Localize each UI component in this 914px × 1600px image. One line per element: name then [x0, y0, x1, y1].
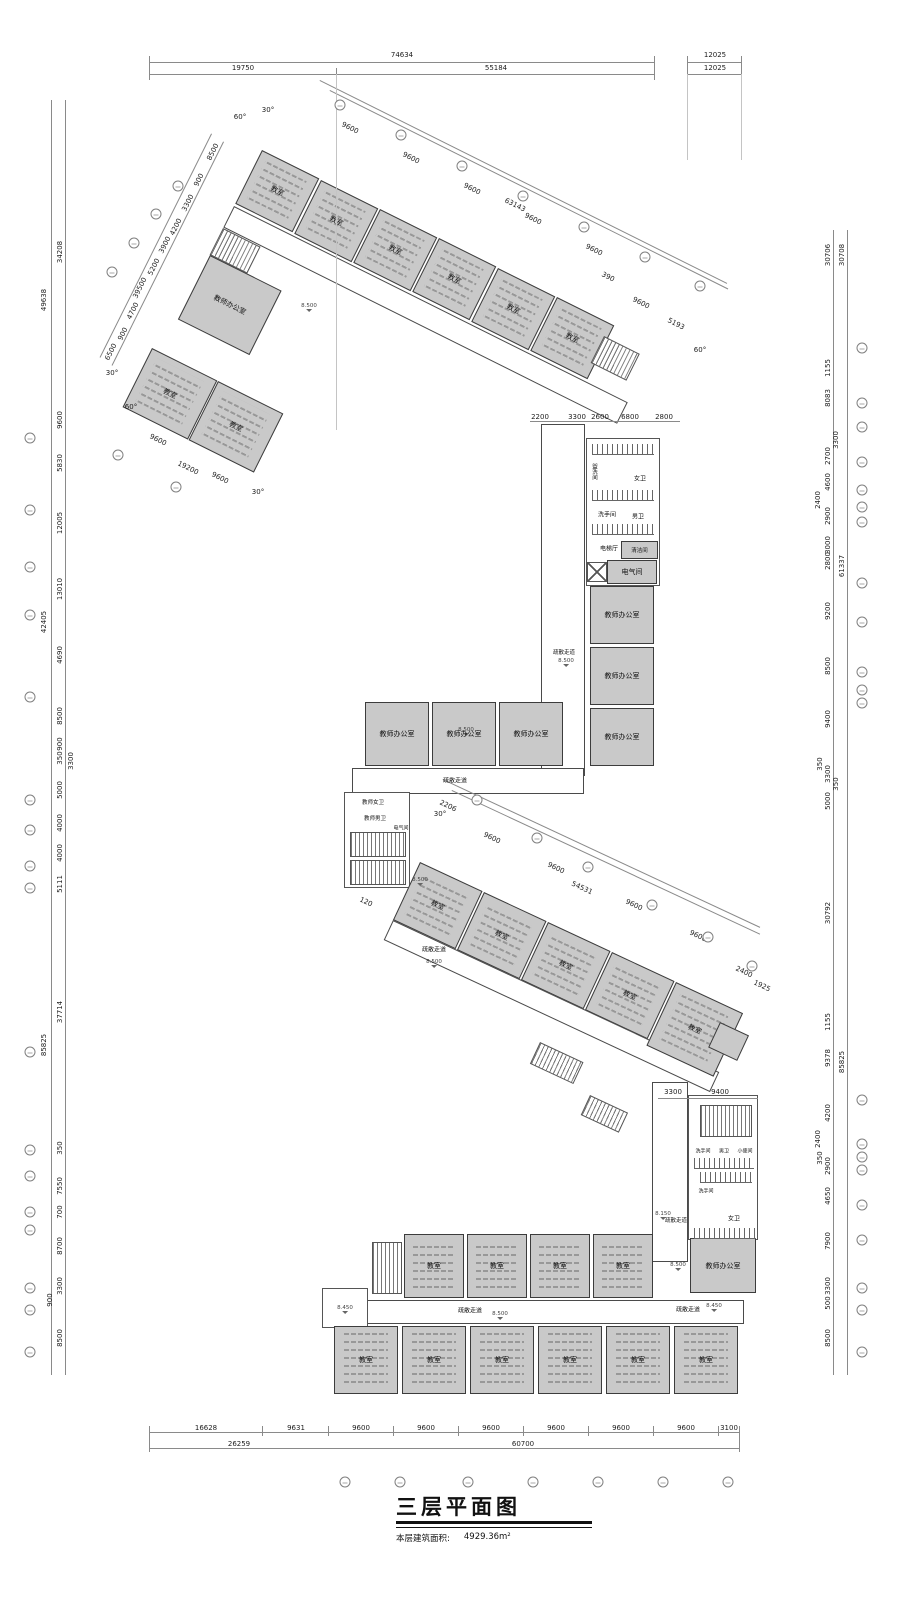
dimension-label: 9600 — [210, 470, 230, 485]
dimension-label: 19750 — [232, 64, 254, 72]
function-label: 洗手间 — [695, 1148, 710, 1155]
dimension-label: 26259 — [228, 1440, 250, 1448]
dimension-label: 9600 — [148, 432, 168, 447]
stair-hatch — [350, 832, 406, 857]
room-label: 教室 — [616, 1261, 630, 1271]
dimension-line — [65, 100, 66, 1375]
grid-axis-bubble — [857, 1305, 868, 1316]
room-label: 教师办公室 — [605, 732, 640, 742]
dimension-label: 5830 — [56, 454, 64, 472]
grid-axis-bubble — [25, 692, 36, 703]
dimension-label: 9400 — [824, 710, 832, 728]
stair-hatch — [350, 860, 406, 885]
grid-axis-bubble — [396, 130, 407, 141]
grid-axis-bubble — [25, 433, 36, 444]
dimension-label: 1155 — [824, 359, 832, 377]
grid-axis-bubble — [472, 795, 483, 806]
grid-axis-bubble — [857, 517, 868, 528]
grid-axis-bubble — [340, 1477, 351, 1488]
dimension-label: 2900 — [824, 507, 832, 525]
level-marker: 8.500 — [558, 658, 574, 670]
stair-hatch — [372, 1242, 402, 1294]
stair-hatch — [700, 1105, 752, 1137]
room-label: 教师办公室 — [706, 1261, 741, 1271]
dimension-label: 9600 — [482, 831, 502, 846]
dimension-label: 9600 — [417, 1424, 435, 1432]
dimension-label: 8500 — [56, 707, 64, 725]
room-office: 教师办公室 — [178, 255, 282, 355]
level-marker: 8.450 — [706, 1303, 722, 1315]
dimension-label: 900 — [46, 1293, 54, 1306]
grid-axis-bubble — [640, 252, 651, 263]
grid-axis-bubble — [723, 1477, 734, 1488]
function-label: 疏散走道 — [443, 776, 467, 785]
function-label: 男卫 — [719, 1148, 729, 1155]
grid-axis-bubble — [593, 1477, 604, 1488]
function-label: 男卫 — [632, 512, 644, 521]
dimension-label: 3300 — [824, 765, 832, 783]
level-marker: 8.500 — [301, 303, 317, 315]
dimension-label: 30° — [434, 810, 446, 818]
dimension-line — [654, 56, 655, 80]
grid-axis-bubble — [579, 222, 590, 233]
dimension-label: 2400 — [814, 1130, 822, 1148]
dimension-label: 700 — [56, 1205, 64, 1218]
room-office: 教师办公室 — [432, 702, 496, 766]
function-label: 女卫 — [728, 1214, 740, 1223]
stair-hatch — [581, 1095, 628, 1133]
dimension-label: 30° — [252, 488, 264, 496]
grid-axis-bubble — [857, 617, 868, 628]
room-label: 教师办公室 — [380, 729, 415, 739]
dimension-line — [150, 1448, 740, 1449]
function-label: 盥洗间 — [590, 464, 598, 481]
level-marker: 8.500 — [670, 1262, 686, 1274]
dimension-label: 4000 — [56, 814, 64, 832]
dimension-label: 8500 — [56, 1329, 64, 1347]
room-office: 教师办公室 — [590, 647, 654, 705]
dimension-label: 3300 — [67, 752, 75, 770]
dimension-label: 3300 — [664, 1088, 682, 1096]
dimension-label: 6800 — [621, 413, 639, 421]
dimension-label: 54531 — [570, 880, 594, 897]
grid-axis-bubble — [25, 562, 36, 573]
dimension-label: 7550 — [56, 1177, 64, 1195]
grid-axis-bubble — [747, 961, 758, 972]
dimension-label: 9600 — [462, 181, 482, 196]
dimension-label: 49638 — [40, 289, 48, 311]
title-underline — [396, 1521, 592, 1528]
dimension-label: 4000 — [56, 844, 64, 862]
room-office: 教师办公室 — [499, 702, 563, 766]
dimension-label: 9378 — [824, 1049, 832, 1067]
room-classroom: 教室 — [402, 1326, 466, 1394]
dimension-line — [150, 1432, 740, 1433]
grid-axis-bubble — [857, 1235, 868, 1246]
dimension-line — [523, 1426, 524, 1436]
dimension-label: 74634 — [391, 51, 413, 59]
grid-axis-bubble — [25, 825, 36, 836]
dimension-label: 9631 — [287, 1424, 305, 1432]
grid-axis-bubble — [658, 1477, 669, 1488]
toilet-stalls — [694, 1158, 754, 1169]
dimension-label: 3300 — [832, 431, 840, 449]
room-label: 教室 — [490, 1261, 504, 1271]
grid-axis-bubble — [25, 1145, 36, 1156]
toilet-stalls — [694, 1228, 756, 1239]
dimension-label: 500 — [824, 1296, 832, 1309]
corridor — [652, 1082, 688, 1262]
room-classroom: 教室 — [606, 1326, 670, 1394]
room-classroom: 教室 — [538, 1326, 602, 1394]
title-block: 三层平面图 本层建筑面积: 4929.36m² — [396, 1496, 598, 1544]
dimension-line — [150, 74, 655, 75]
dimension-label: 42405 — [40, 611, 48, 633]
level-marker: 8.500 — [426, 959, 442, 971]
grid-axis-bubble — [857, 685, 868, 696]
grid-axis-bubble — [113, 450, 124, 461]
dimension-label: 5000 — [824, 792, 832, 810]
level-marker: 8.500 — [492, 1311, 508, 1323]
area-line: 本层建筑面积: 4929.36m² — [396, 1532, 598, 1544]
dimension-label: 9600 — [612, 1424, 630, 1432]
dimension-label: 9600 — [340, 120, 360, 135]
room-label: 教室 — [553, 1261, 567, 1271]
dimension-line — [658, 1098, 758, 1099]
dimension-label: 9400 — [711, 1088, 729, 1096]
dimension-label: 9600 — [631, 295, 651, 310]
dimension-label: 9200 — [824, 602, 832, 620]
dimension-label: 350 — [56, 1141, 64, 1154]
dimension-label: 9600 — [624, 898, 644, 913]
dimension-label: 120 — [358, 896, 374, 909]
dimension-label: 5111 — [56, 875, 64, 893]
dimension-label: 9600 — [546, 861, 566, 876]
grid-axis-bubble — [25, 1305, 36, 1316]
dimension-label: 30° — [106, 369, 118, 377]
function-label: 小便间 — [737, 1148, 752, 1155]
dimension-label: 37714 — [56, 1001, 64, 1023]
dimension-line — [262, 1426, 263, 1436]
dimension-label: 3300 — [824, 1277, 832, 1295]
dimension-label: 60° — [125, 403, 137, 411]
floor-plan-canvas: 三层平面图 本层建筑面积: 4929.36m² 教室教室教室教室教室教室教师办公… — [0, 0, 914, 1600]
dimension-label: 2400 — [814, 491, 822, 509]
area-value: 4929.36m² — [464, 1532, 511, 1544]
dimension-line — [149, 1426, 150, 1452]
dimension-label: 9600 — [677, 1424, 695, 1432]
grid-axis-bubble — [528, 1477, 539, 1488]
dimension-label: 9600 — [547, 1424, 565, 1432]
dimension-line — [653, 1426, 654, 1436]
dimension-label: 2200 — [531, 413, 549, 421]
dimension-label: 16628 — [195, 1424, 217, 1432]
grid-axis-bubble — [25, 883, 36, 894]
dimension-line — [833, 230, 834, 1375]
room-label: 教师办公室 — [605, 671, 640, 681]
level-marker: 8.500 — [412, 877, 428, 889]
grid-axis-bubble — [107, 267, 118, 278]
dimension-line — [741, 74, 742, 160]
grid-axis-bubble — [25, 1207, 36, 1218]
dimension-line — [149, 56, 150, 80]
dimension-label: 4200 — [824, 1104, 832, 1122]
dimension-label: 19200 — [176, 459, 200, 476]
room-classroom: 教室 — [404, 1234, 464, 1298]
dimension-line — [458, 1426, 459, 1436]
toilet-stalls — [592, 490, 654, 501]
function-label: 疏散走道 — [458, 1306, 482, 1315]
room-classroom: 教室 — [530, 1234, 590, 1298]
dimension-line — [687, 74, 688, 160]
dimension-label: 85825 — [40, 1034, 48, 1056]
grid-axis-bubble — [25, 610, 36, 621]
dimension-label: 85825 — [838, 1051, 846, 1073]
grid-axis-bubble — [857, 485, 868, 496]
dimension-line — [588, 1426, 589, 1436]
dimension-label: 9600 — [523, 211, 543, 226]
grid-axis-bubble — [463, 1477, 474, 1488]
grid-axis-bubble — [129, 238, 140, 249]
function-label: 疏散走道 — [676, 1305, 700, 1314]
grid-axis-bubble — [857, 502, 868, 513]
room-label: 教室 — [631, 1355, 645, 1365]
dimension-label: 3300 — [568, 413, 586, 421]
room-label: 教室 — [427, 1355, 441, 1365]
dimension-label: 30708 — [838, 244, 846, 266]
function-label: 教师男卫 — [364, 814, 386, 822]
room-classroom: 教室 — [470, 1326, 534, 1394]
grid-axis-bubble — [151, 209, 162, 220]
toilet-stalls — [592, 444, 654, 455]
room-label: 教室 — [359, 1355, 373, 1365]
room-office: 教师办公室 — [590, 586, 654, 644]
room-office: 教师办公室 — [365, 702, 429, 766]
room-label: 教室 — [699, 1355, 713, 1365]
grid-axis-bubble — [647, 900, 658, 911]
dimension-label: 60° — [234, 113, 246, 121]
dimension-label: 2900 — [824, 1157, 832, 1175]
room-office: 电气间 — [607, 560, 657, 584]
room-label: 教室 — [427, 1261, 441, 1271]
dimension-label: 12025 — [704, 64, 726, 72]
dimension-label: 390 — [600, 270, 616, 283]
dimension-line — [336, 74, 337, 430]
dimension-line — [688, 74, 742, 75]
dimension-label: 4650 — [824, 1187, 832, 1205]
dimension-label: 12005 — [56, 512, 64, 534]
function-label: 电梯厅 — [600, 544, 618, 553]
grid-axis-bubble — [25, 861, 36, 872]
dimension-label: 30° — [262, 106, 274, 114]
dimension-label: 8500 — [824, 1329, 832, 1347]
room-office: 教师办公室 — [690, 1238, 756, 1293]
dimension-label: 1925 — [752, 979, 772, 994]
dimension-line — [688, 62, 742, 63]
dimension-line — [847, 230, 848, 1375]
dimension-label: 9600 — [352, 1424, 370, 1432]
grid-axis-bubble — [583, 862, 594, 873]
function-label: 疏散走道 — [422, 945, 446, 954]
room-label: 电气间 — [622, 567, 643, 577]
dimension-label: 7900 — [824, 1232, 832, 1250]
room-office: 教师办公室 — [590, 708, 654, 766]
dimension-label: 2800 — [655, 413, 673, 421]
room-label: 教师办公室 — [447, 729, 482, 739]
level-marker: 8.150 — [655, 1211, 671, 1223]
area-label: 本层建筑面积: — [396, 1532, 450, 1544]
level-marker: 8.450 — [337, 1305, 353, 1317]
grid-axis-bubble — [857, 422, 868, 433]
dimension-label: 4600 — [824, 473, 832, 491]
dimension-label: 9600 — [584, 242, 604, 257]
grid-axis-bubble — [25, 1283, 36, 1294]
dimension-label: 8500 — [824, 657, 832, 675]
grid-axis-bubble — [703, 932, 714, 943]
dimension-label: 55184 — [485, 64, 507, 72]
grid-axis-bubble — [857, 343, 868, 354]
grid-axis-bubble — [857, 578, 868, 589]
dimension-line — [393, 1426, 394, 1436]
dimension-label: 9600 — [482, 1424, 500, 1432]
grid-axis-bubble — [857, 1347, 868, 1358]
dimension-label: 3300 — [56, 1277, 64, 1295]
room-label: 清洁间 — [631, 546, 648, 554]
drawing-title: 三层平面图 — [396, 1496, 598, 1519]
room-label: 教师办公室 — [212, 293, 248, 318]
dimension-label: 3100 — [720, 1424, 738, 1432]
room-classroom: 教室 — [467, 1234, 527, 1298]
grid-axis-bubble — [25, 505, 36, 516]
dimension-label: 12025 — [704, 51, 726, 59]
function-label: 洗手间 — [698, 1188, 713, 1195]
grid-axis-bubble — [171, 482, 182, 493]
dimension-label: 350 — [832, 777, 840, 790]
dimension-label: 13010 — [56, 578, 64, 600]
stair-hatch — [530, 1042, 584, 1084]
dimension-label: 8083 — [824, 389, 832, 407]
grid-axis-bubble — [695, 281, 706, 292]
room-label: 教室 — [495, 1355, 509, 1365]
grid-axis-bubble — [25, 1347, 36, 1358]
dimension-label: 4690 — [56, 646, 64, 664]
dimension-label: 900 — [56, 737, 64, 750]
dimension-label: 30706 — [824, 244, 832, 266]
dimension-label: 350 — [816, 1151, 824, 1164]
grid-axis-bubble — [25, 1171, 36, 1182]
grid-axis-bubble — [25, 1225, 36, 1236]
grid-axis-bubble — [857, 667, 868, 678]
dimension-label: 2600 — [591, 413, 609, 421]
dimension-label: 9600 — [401, 150, 421, 165]
grid-axis-bubble — [457, 161, 468, 172]
dimension-line — [150, 62, 655, 63]
dimension-label: 2700 — [824, 447, 832, 465]
grid-axis-bubble — [857, 1200, 868, 1211]
dimension-label: 60700 — [512, 1440, 534, 1448]
room-office: 清洁间 — [621, 541, 658, 559]
grid-axis-bubble — [395, 1477, 406, 1488]
grid-axis-bubble — [857, 457, 868, 468]
dimension-line — [739, 1426, 740, 1452]
function-label: 疏散走道 — [553, 648, 575, 656]
room-label: 教师办公室 — [514, 729, 549, 739]
dimension-label: 9600 — [56, 411, 64, 429]
grid-axis-bubble — [857, 698, 868, 709]
grid-axis-bubble — [335, 100, 346, 111]
dimension-label: 34208 — [56, 241, 64, 263]
grid-axis-bubble — [857, 1095, 868, 1106]
grid-axis-bubble — [25, 795, 36, 806]
room-classroom: 教室 — [674, 1326, 738, 1394]
grid-axis-bubble — [532, 833, 543, 844]
dimension-label: 5000 — [56, 781, 64, 799]
dimension-label: 61337 — [838, 555, 846, 577]
dimension-label: 1155 — [824, 1013, 832, 1031]
grid-axis-bubble — [173, 181, 184, 192]
grid-axis-bubble — [857, 1152, 868, 1163]
toilet-stalls — [700, 1172, 752, 1183]
dimension-line — [328, 1426, 329, 1436]
room-label: 教室 — [563, 1355, 577, 1365]
dimension-label: 350 — [816, 757, 824, 770]
function-label: 女卫 — [634, 474, 646, 483]
dimension-label: 30792 — [824, 902, 832, 924]
room-classroom: 教室 — [334, 1326, 398, 1394]
dimension-label: 350 — [56, 751, 64, 764]
elevator-shaft — [587, 562, 607, 582]
dimension-line — [51, 100, 52, 1375]
dimension-label: 5193 — [666, 316, 686, 331]
dimension-label: 60° — [694, 346, 706, 354]
function-label: 洗手间 — [598, 510, 616, 519]
toilet-stalls — [592, 524, 654, 535]
dimension-line — [530, 421, 680, 422]
grid-axis-bubble — [857, 1165, 868, 1176]
grid-axis-bubble — [857, 398, 868, 409]
function-label: 电气间 — [393, 825, 408, 832]
grid-axis-bubble — [857, 1139, 868, 1150]
function-label: 教师女卫 — [362, 798, 384, 806]
grid-axis-bubble — [857, 1283, 868, 1294]
room-classroom: 教室 — [593, 1234, 653, 1298]
dimension-label: 2800 — [824, 552, 832, 570]
grid-axis-bubble — [25, 1047, 36, 1058]
room-label: 教师办公室 — [605, 610, 640, 620]
dimension-line — [718, 1426, 719, 1436]
grid-axis-bubble — [518, 191, 529, 202]
dimension-label: 8700 — [56, 1237, 64, 1255]
